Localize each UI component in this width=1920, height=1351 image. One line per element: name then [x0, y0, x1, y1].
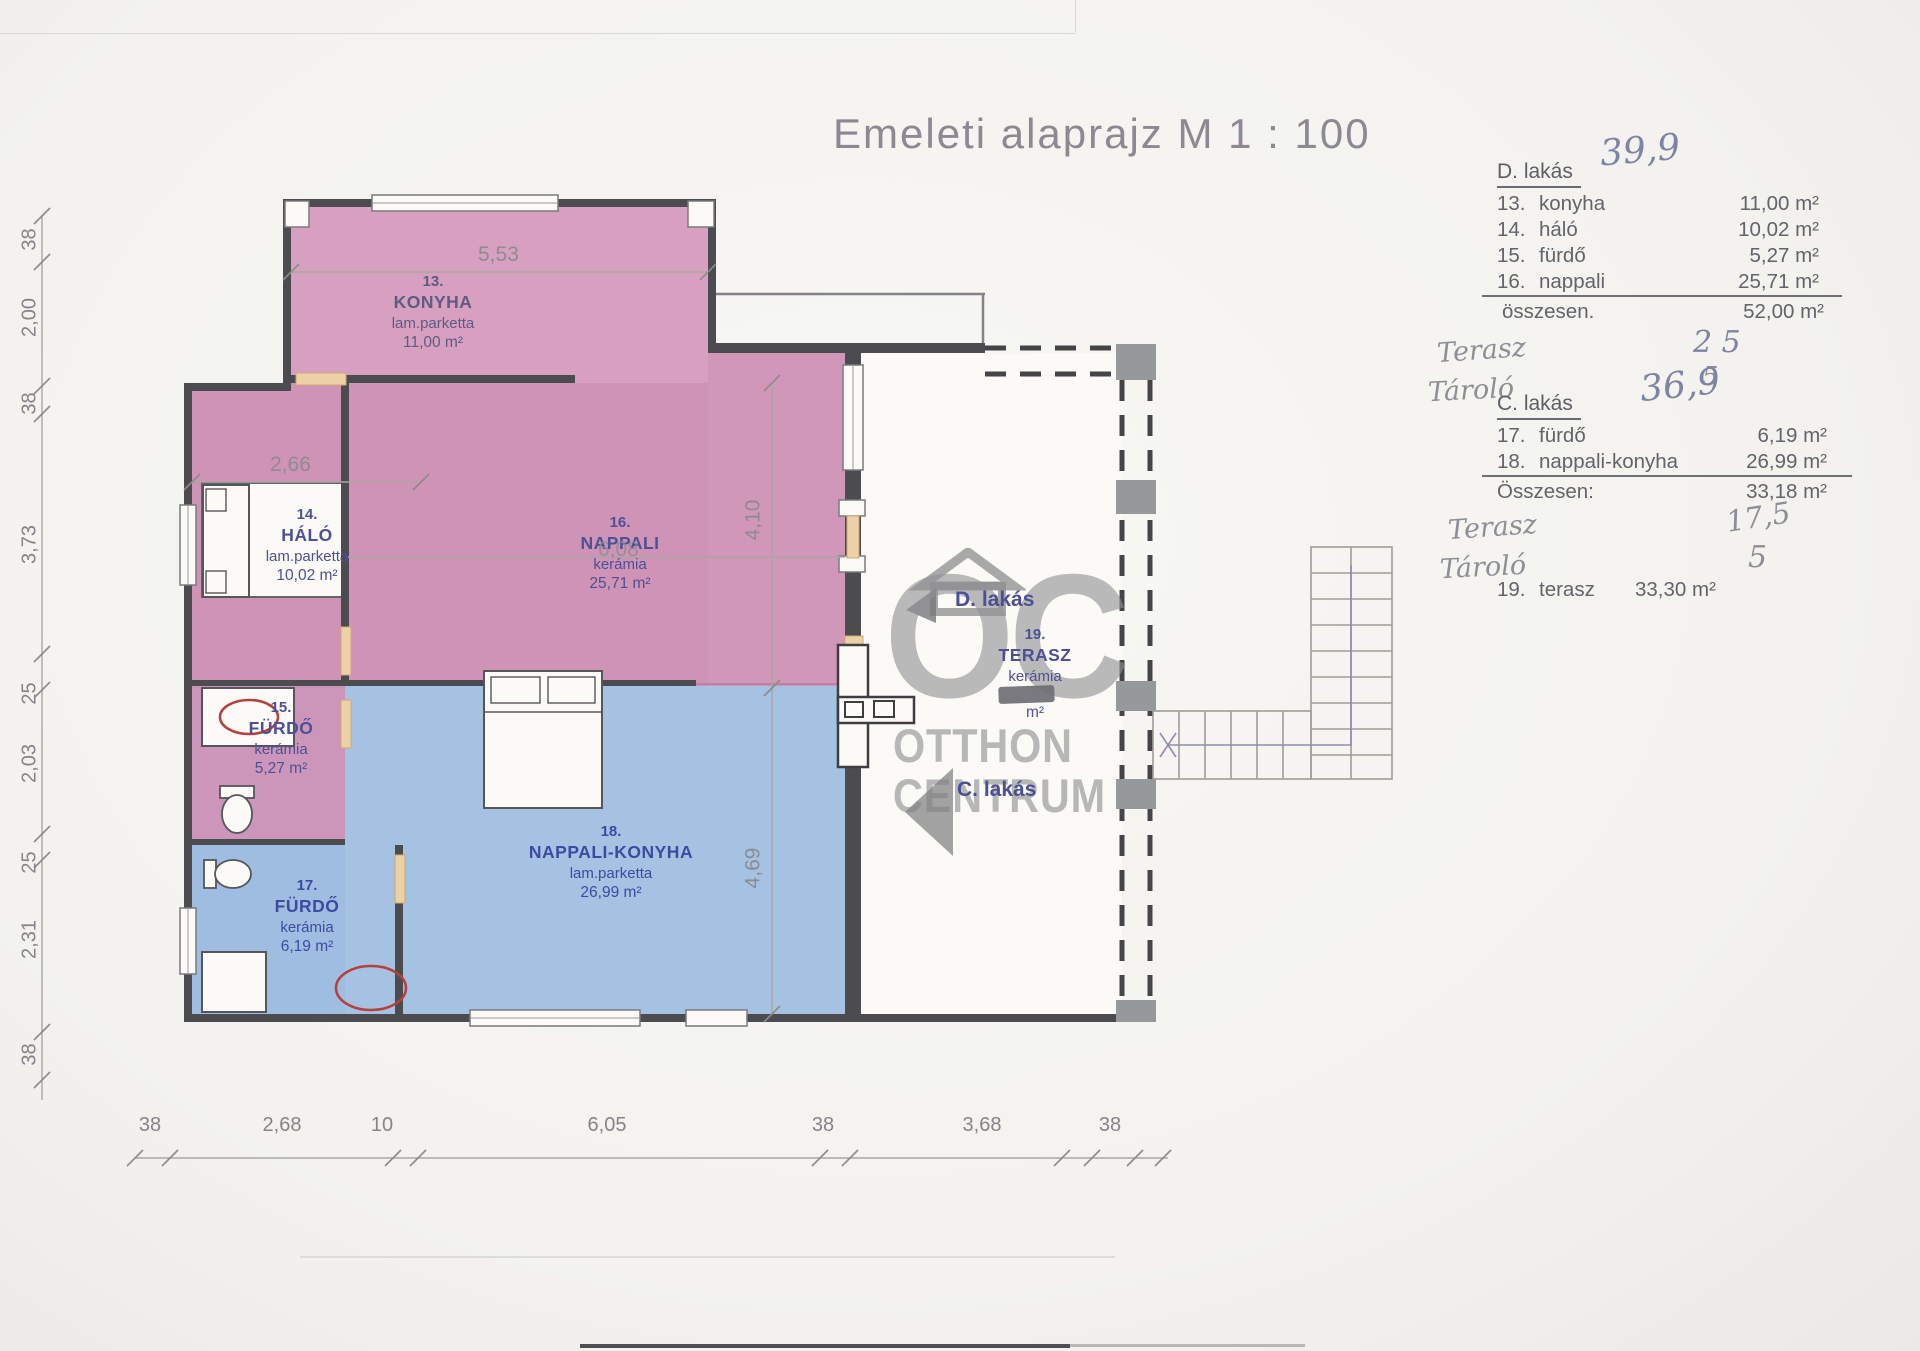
legend-c-hand-terasz-label: Terasz	[1447, 509, 1538, 546]
dim-left-4: 25	[19, 656, 42, 732]
legend-c-hand-tarolo-value: 5	[1748, 540, 1767, 575]
dim-konyha-width: 5,53	[478, 243, 519, 267]
dim-bottom-5: 3,68	[963, 1114, 1002, 1137]
legend-c-row-18: 18.nappali-konyha26,99 m²	[1497, 450, 1827, 474]
legend-c-underline	[1482, 475, 1852, 477]
legend-d-heading: D. lakás	[1497, 160, 1581, 188]
dim-left-0: 38	[19, 202, 42, 278]
scan-line-bottom-dark	[580, 1344, 1070, 1348]
legend-d-hand-terasz-value: 2 5	[1693, 325, 1741, 360]
bed-halo	[203, 485, 249, 597]
toilet-17	[204, 860, 251, 888]
room-label-nappali-konyha: 18. NAPPALI-KONYHA lam.parketta 26,99 m²	[529, 822, 693, 903]
watermark-otthon-text: OTTHON	[893, 718, 1073, 773]
dim-left-1: 2,00	[19, 280, 42, 356]
dim-bottom-1: 2,68	[263, 1114, 302, 1137]
room-label-furdo-15: 15. FÜRDŐ kerámia 5,27 m²	[249, 698, 314, 779]
scan-tick-top	[1075, 0, 1076, 33]
scan-line-bottom-light	[1070, 1344, 1305, 1347]
scan-line-mid	[300, 1256, 1115, 1258]
legend-d-handwritten-total: 39,9	[1598, 127, 1681, 175]
legend-d-row-16: 16.nappali25,71 m²	[1497, 270, 1819, 294]
legend-d-row-15: 15.fürdő5,27 m²	[1497, 244, 1819, 268]
legend-c-heading: C. lakás	[1497, 392, 1581, 420]
unit-label-d-lakas: D. lakás	[955, 588, 1034, 612]
dim-left-7: 2,31	[19, 902, 42, 978]
dim-left-2: 38	[19, 366, 42, 442]
legend-c-terasz-row: 19.terasz33,30 m²	[1497, 578, 1737, 602]
dim-nappali-width: 6,08	[598, 538, 639, 562]
dim-bottom-3: 6,05	[588, 1114, 627, 1137]
dim-terasz-height: 4,10	[741, 500, 765, 541]
legend-d-row-14: 14.háló10,02 m²	[1497, 218, 1819, 242]
dim-bottom-4: 38	[812, 1114, 834, 1137]
dim-nk-height: 4,69	[741, 848, 765, 889]
dim-bottom-6: 38	[1099, 1114, 1121, 1137]
legend-c-row-17: 17.fürdő6,19 m²	[1497, 424, 1827, 448]
scanned-floorplan-page: OC OTTHON CENTRUM Emeleti alaprajz M 1 :…	[0, 0, 1920, 1351]
shower-17	[202, 952, 266, 1012]
dim-halo-width: 2,66	[270, 453, 311, 477]
room-label-furdo-17: 17. FÜRDŐ kerámia 6,19 m²	[275, 876, 340, 957]
room-label-halo: 14. HÁLÓ lam.parketta 10,02 m²	[266, 505, 349, 586]
room-label-konyha: 13. KONYHA lam.parketta 11,00 m²	[392, 272, 475, 353]
legend-d-underline	[1482, 295, 1842, 297]
page-title: Emeleti alaprajz M 1 : 100	[833, 110, 1371, 158]
legend-d-row-13: 13.konyha11,00 m²	[1497, 192, 1819, 216]
legend-d-hand-terasz-label: Terasz	[1436, 332, 1527, 369]
watermark-play-triangle	[905, 768, 953, 856]
canopy-lines	[716, 294, 985, 348]
scan-line-top	[0, 33, 1075, 34]
dim-bottom-2: 10	[371, 1114, 393, 1137]
room-label-terasz: 19. TERASZ kerámia m²	[999, 625, 1072, 723]
obscured-area-blob	[998, 685, 1055, 704]
dim-left-3: 3,73	[19, 507, 42, 583]
bed-double	[484, 671, 602, 808]
dim-left-8: 38	[19, 1017, 42, 1093]
dim-left-5: 2,03	[19, 726, 42, 802]
unit-label-c-lakas: C. lakás	[957, 778, 1036, 802]
legend-d-total-row: összesen.52,00 m²	[1502, 300, 1824, 324]
dim-left-6: 25	[19, 825, 42, 901]
legend-c-handwritten-total: 36,9	[1638, 361, 1722, 410]
toilet-15	[220, 786, 254, 833]
dim-bottom-0: 38	[139, 1114, 161, 1137]
